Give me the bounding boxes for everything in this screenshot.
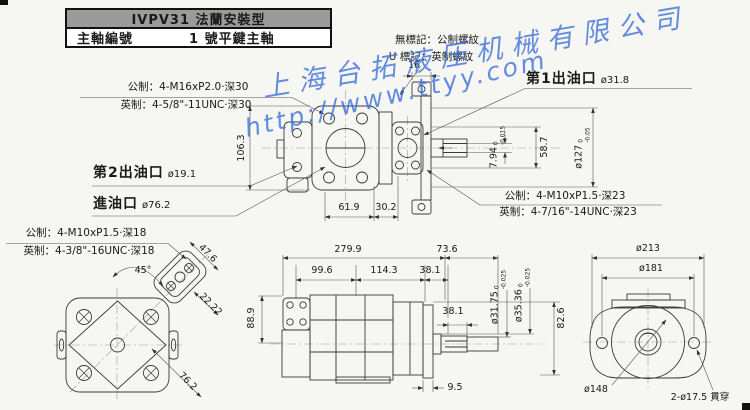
spec-right-imperial: 英制：4-7/16"-14UNC·深23 <box>499 207 637 219</box>
shaft-code-value: 1 號平鍵主軸 <box>189 28 275 47</box>
dim-shaft-ext: 73.6 <box>436 245 457 255</box>
outlet1-size: ø31.8 <box>601 75 629 86</box>
title-block-row: 主軸編號 1 號平鍵主軸 <box>67 29 330 46</box>
dim-dia213: ø213 <box>636 244 660 254</box>
dim-pilot-dia: ø1270-0.05 <box>574 127 591 168</box>
spec-bottomleft-metric: 公制：4-M10xP1.5·深18 <box>26 228 147 240</box>
callout-outlet1: 第1出油口 ø31.8 <box>526 68 629 88</box>
note-thread-imperial: U 標記：英制螺紋 <box>389 52 474 64</box>
dim-len-total: 279.9 <box>334 245 361 255</box>
spec-bottomleft-imperial: 英制：4-3/8"-16UNC·深18 <box>24 246 155 258</box>
dim-114-3: 114.3 <box>370 266 397 276</box>
dim-82-6: 82.6 <box>557 307 567 328</box>
outlet2-label: 第2出油口 <box>93 162 164 182</box>
outlet2-size: ø19.1 <box>168 169 196 180</box>
callout-inlet: 進油口 ø76.2 <box>93 193 170 213</box>
title-block: IVPV31 法蘭安裝型 主軸編號 1 號平鍵主軸 <box>65 8 332 48</box>
spec-topleft-imperial: 英制：4-5/8"-11UNC·深30 <box>121 100 252 112</box>
dim-mount-holes: 2-ø17.5 貫穿 <box>671 393 729 403</box>
spec-right-metric: 公制：4-M10xP1.5·深23 <box>505 191 626 203</box>
scan-artifact-bottomright <box>742 403 750 410</box>
technical-drawing-page: IVPV31 法蘭安裝型 主軸編號 1 號平鍵主軸 無標記：公制螺紋 U 標記：… <box>0 0 750 410</box>
dim-body-height: 106.3 <box>237 134 247 161</box>
title-block-header: IVPV31 法蘭安裝型 <box>67 10 330 29</box>
dim-shaft-len: 58.7 <box>540 136 550 157</box>
dim-88-9: 88.9 <box>247 307 257 328</box>
dim-shaft-dia2: ø35.360-0.025 <box>514 268 531 322</box>
dim-38-1-row: 38.1 <box>419 266 440 276</box>
dim-angle-45: 45° <box>135 266 152 276</box>
dim-shaft-dia1: ø31.750-0.025 <box>490 270 507 324</box>
dim-61-9: 61.9 <box>338 203 359 213</box>
dim-30-2: 30.2 <box>375 203 396 213</box>
inlet-label: 進油口 <box>93 193 138 213</box>
shaft-code-label: 主軸編號 <box>77 28 133 47</box>
dim-flange-tab: 16 <box>408 61 420 71</box>
dim-dia181: ø181 <box>639 264 663 274</box>
callout-outlet2: 第2出油口 ø19.1 <box>93 162 196 182</box>
dim-38-1-shaft: 38.1 <box>442 307 463 317</box>
dim-key-height: 7.940-0.015 <box>489 126 506 169</box>
dim-dia148: ø148 <box>584 385 608 395</box>
spec-topleft-metric: 公制：4-M16xP2.0·深30 <box>128 82 249 94</box>
scan-artifact-topleft <box>0 0 8 5</box>
dim-99-6: 99.6 <box>311 266 332 276</box>
note-thread-metric: 無標記：公制螺紋 <box>395 35 479 47</box>
outlet1-label: 第1出油口 <box>526 68 597 88</box>
inlet-size: ø76.2 <box>142 200 170 211</box>
dim-9-5: 9.5 <box>447 383 462 393</box>
